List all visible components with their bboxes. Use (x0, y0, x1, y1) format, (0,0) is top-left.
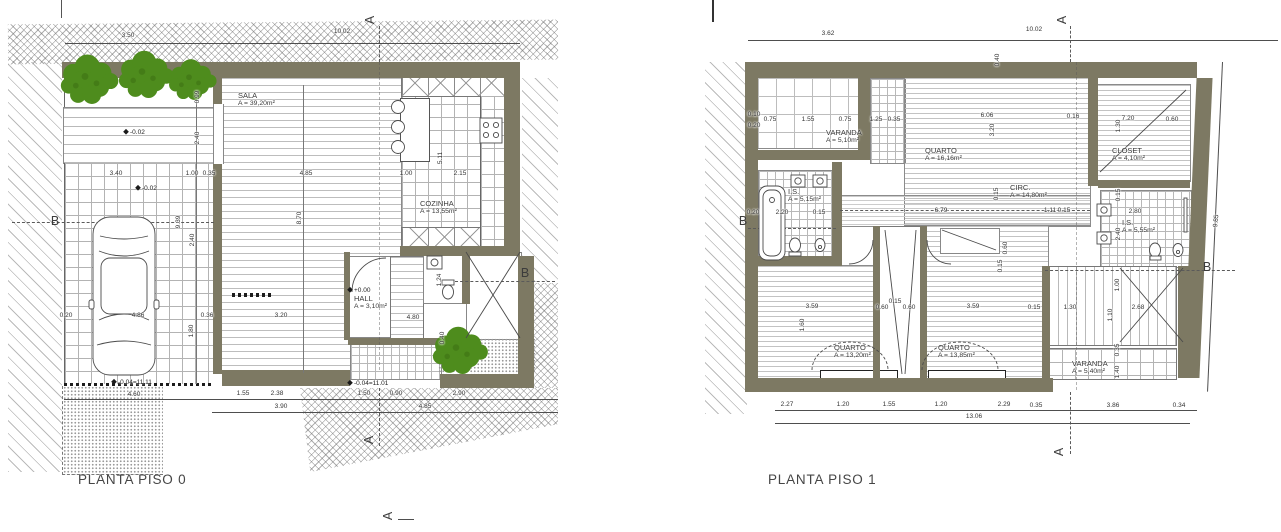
room-label: CLOSETA = 4,10m² (1112, 146, 1145, 164)
dim-label: 1.50 (358, 391, 371, 398)
dim-label: 0.20 (747, 210, 760, 217)
dim-label: 0.75 (764, 117, 777, 124)
wall (858, 78, 870, 158)
wall (920, 226, 927, 378)
piso1-section-a-line-top (1070, 26, 1071, 62)
dim-label: 1.30 (1116, 120, 1123, 133)
dim-label: 1.00 (400, 171, 413, 178)
piso1-closet-floor (1098, 85, 1190, 181)
section-mark-a: A (1056, 16, 1069, 24)
piso1-section-b-line-left (748, 228, 836, 229)
dim-label: 3.20 (990, 124, 997, 137)
dim-label: 1.10 (1108, 309, 1115, 322)
wall (462, 252, 470, 304)
dim-label: 6.79 (935, 208, 948, 215)
room-label: CIRC.A = 14,80m² (1010, 183, 1047, 201)
dim-label: 2.40 (190, 234, 197, 247)
piso0-bottom-a-tick (398, 519, 414, 520)
wall (400, 246, 520, 256)
piso0-deck-upper (64, 78, 214, 108)
wall (758, 150, 870, 160)
dim-label: 2.20 (776, 210, 789, 217)
section-mark-b: B (1203, 261, 1211, 274)
piso0-street-hatch (8, 20, 558, 65)
dim-label: 0.16 (1067, 114, 1080, 121)
wall (344, 252, 350, 340)
dim-label: 3.59 (806, 304, 819, 311)
section-mark-b: B (51, 215, 59, 228)
room-label: QUARTOA = 13,85m² (938, 343, 975, 361)
dim-label: 1.00 (186, 171, 199, 178)
section-mark-a: A (363, 436, 376, 444)
piso0-stairs (390, 256, 424, 340)
dim-label: 6.06 (981, 113, 994, 120)
section-mark-b: B (521, 267, 529, 280)
section-mark-a: A (364, 16, 377, 24)
drawing-canvas: 3.5010.020.992.403.401.000.354.851.002.1… (0, 0, 1281, 532)
dim-line (748, 40, 1278, 41)
dim-label: 4.80 (407, 315, 420, 322)
dim-label: 9.85 (1213, 214, 1221, 227)
wall (873, 226, 880, 378)
dim-label: 10.02 (1026, 27, 1042, 34)
dim-label: 4.85 (419, 404, 432, 411)
dim-label: 9.39 (176, 216, 183, 229)
dim-label: 0.20 (60, 313, 73, 320)
dim-label: 0.15 (1028, 305, 1041, 312)
piso0-driveway-tiles (64, 163, 214, 384)
dim-label: 0.99 (195, 91, 202, 104)
dim-label: 0.15 (998, 260, 1005, 273)
dim-label: 0.35 (888, 117, 901, 124)
dim-label: 2.29 (998, 402, 1011, 409)
dim-label: 8.70 (297, 212, 304, 225)
wall (745, 62, 1197, 78)
piso0-deck-door-gap (213, 104, 224, 164)
dim-label: 0.15 (889, 299, 902, 306)
dim-label: 2.27 (781, 402, 794, 409)
dim-label: 0.15 (813, 210, 826, 217)
dim-label: 1.55 (883, 402, 896, 409)
dim-label: 0.10 (748, 112, 761, 119)
piso0-neighbor-hatch-left (8, 62, 62, 472)
door-arc (849, 240, 873, 264)
dim-label: 1.11 (1044, 208, 1056, 215)
dim-label: 2.15 (454, 171, 467, 178)
piso0-top-tick (61, 0, 62, 18)
dim-label: 4.85 (300, 171, 313, 178)
dim-label: 3.59 (967, 304, 980, 311)
dim-label: 1.30 (1064, 305, 1077, 312)
dim-label: 1.00 (1115, 279, 1122, 292)
piso0-courtyard-x (466, 252, 522, 340)
wall (62, 62, 520, 78)
wall (504, 78, 520, 246)
dim-label: 0.40 (995, 54, 1002, 67)
dim-label: 3.40 (110, 171, 123, 178)
wall (1178, 266, 1192, 378)
wall (745, 378, 1053, 392)
dim-label: 1.20 (935, 402, 948, 409)
dim-label: 2.90 (453, 391, 466, 398)
room-label: VARANDAA = 5,40m² (1072, 359, 1108, 377)
wall (348, 338, 440, 345)
level-marker: -0.02 (136, 186, 157, 193)
dim-label: 1.55 (802, 117, 815, 124)
dim-label: 0.75 (839, 117, 852, 124)
dim-label: 1.60 (800, 319, 807, 332)
dim-label: 1.20 (837, 402, 850, 409)
room-label: QUARTOA = 13,20m² (834, 343, 871, 361)
dim-label: 0.60 (876, 305, 889, 312)
dim-label: 10.02 (334, 29, 350, 36)
dim-label: 0.35 (1115, 344, 1122, 357)
dim-label: 0.40 (440, 332, 447, 345)
piso1-niche (940, 228, 1000, 254)
dim-label: 2.40 (195, 132, 202, 145)
dim-label: 3.20 (275, 313, 288, 320)
room-label: VARANDAA = 5,10m² (826, 128, 862, 146)
dim-label: 0.60 (1166, 117, 1179, 124)
dim-label: 3.50 (122, 33, 135, 40)
dim-label: 0.35 (1030, 403, 1043, 410)
dim-line (196, 78, 197, 384)
section-mark-b: B (739, 215, 747, 228)
piso1-neighbor-hatch-left (705, 62, 747, 414)
dim-label: 0.15 (1058, 208, 1071, 215)
dim-line (64, 399, 212, 400)
piso0-kitchen-counter (480, 96, 505, 246)
dim-line (775, 410, 1197, 411)
level-marker: -0.02 (124, 130, 145, 137)
room-label: I.S.A = 5,15m² (788, 187, 821, 205)
dim-label: 0.15 (994, 188, 1001, 201)
piso1-section-a-line-mid (1076, 62, 1077, 390)
dim-label: 4.86 (132, 313, 145, 320)
piso0-radiator (232, 293, 274, 297)
dim-label: 3.86 (1107, 403, 1120, 410)
dim-label: 0.60 (903, 305, 916, 312)
dim-label: 2.38 (271, 391, 284, 398)
dim-line (775, 423, 1190, 424)
piso1-title: PLANTA PISO 1 (768, 472, 876, 487)
dim-label: 7.20 (1122, 116, 1135, 123)
piso0-section-a-line-top (379, 26, 380, 62)
dim-label: 1.80 (189, 325, 196, 338)
dim-label: 4.60 (128, 392, 141, 399)
dim-label: 1.55 (237, 391, 250, 398)
piso0-neighbor-hatch-right (522, 78, 558, 282)
level-marker: -0.04=11.11 (112, 380, 152, 387)
dim-label: 0.34 (1173, 403, 1186, 410)
dim-label: 13.06 (966, 414, 982, 421)
piso1-top-tick (712, 0, 714, 22)
dim-label: 2.80 (1129, 209, 1142, 216)
room-label: COZINHAA = 13,55m² (420, 199, 457, 217)
room-label: HALLA = 3,10m² (354, 294, 387, 312)
dim-line (65, 43, 520, 44)
room-label: I.S.A = 5,55m² (1122, 218, 1155, 236)
piso1-quarto2-floor (758, 266, 873, 378)
piso0-bottom-hatch (300, 388, 558, 472)
dim-label: 0.20 (748, 123, 761, 130)
dim-line (303, 85, 304, 373)
piso0-section-b-line-left (12, 222, 214, 223)
dim-label: 1.40 (1115, 366, 1122, 379)
dim-label: 1.25 (870, 117, 883, 124)
wall (222, 370, 350, 386)
dim-label: 3.90 (275, 404, 288, 411)
room-label: QUARTOA = 16,16m² (925, 146, 962, 164)
wall (1088, 78, 1098, 186)
piso0-kitchen-island (400, 98, 430, 162)
dim-label: 0.60 (1003, 242, 1010, 255)
level-marker: -0.04=11.01 (348, 381, 388, 388)
dim-label: 2.68 (1132, 305, 1145, 312)
piso0-section-a-line-bottom (379, 388, 380, 446)
section-mark-a: A (382, 512, 395, 520)
dim-label: 0.35 (203, 171, 216, 178)
room-label: SALAA = 39,20m² (238, 91, 275, 109)
dim-label: 0.90 (390, 391, 403, 398)
dim-line (212, 399, 558, 400)
piso0-section-b-line-right (455, 281, 555, 282)
wall (758, 256, 842, 266)
dim-label: 0.15 (1116, 189, 1123, 202)
dim-label: 0.36 (201, 313, 214, 320)
section-mark-a: A (1053, 448, 1066, 456)
dim-label: 3.62 (822, 31, 835, 38)
wall (1098, 180, 1190, 188)
dim-line (212, 412, 558, 413)
piso1-varanda2-floor (1048, 348, 1177, 380)
wall (1042, 266, 1050, 378)
dim-label: 1.24 (437, 274, 444, 287)
piso0-title: PLANTA PISO 0 (78, 472, 186, 487)
piso0-section-a-line-mid (379, 62, 380, 370)
piso0-wc-floor (423, 252, 467, 304)
dim-label: 5.11 (438, 152, 445, 164)
wall (440, 374, 534, 388)
